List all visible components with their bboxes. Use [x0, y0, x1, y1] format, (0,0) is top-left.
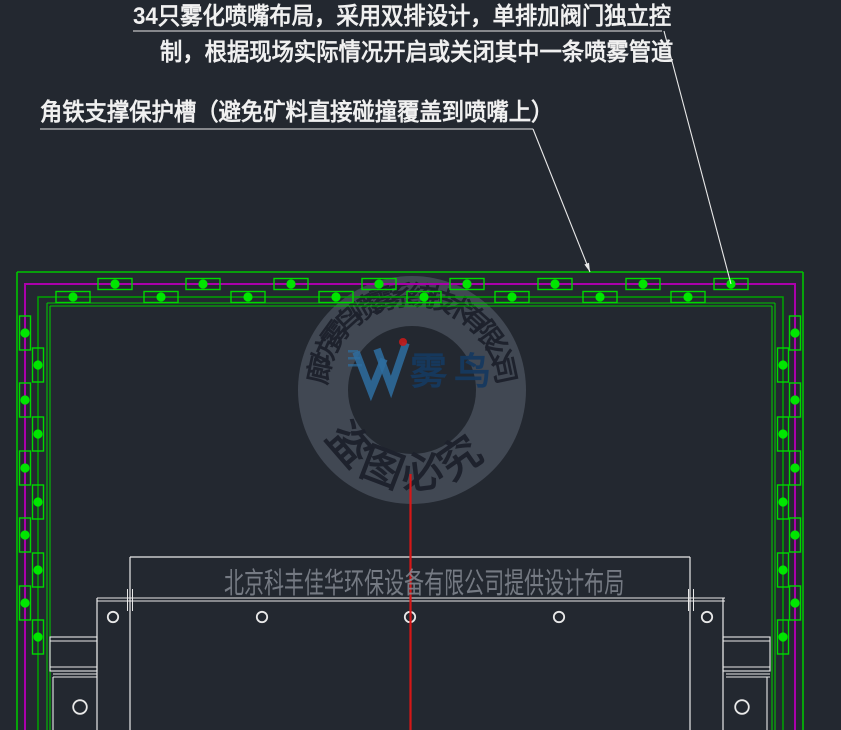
annotation-nozzle-layout-line1: 34只雾化喷嘴布局，采用双排设计，单排加阀门独立控 [133, 4, 671, 30]
bolt-hole [257, 612, 267, 622]
watermark-design-credit: 北京科丰佳华环保设备有限公司提供设计布局 [224, 560, 624, 602]
bolt-hole [554, 612, 564, 622]
logo-wuniao-text: 雾鸟 [410, 351, 498, 392]
bolt-hole [702, 612, 712, 622]
bolt-hole [73, 700, 87, 714]
leader-arrowhead [584, 263, 590, 272]
annotation-nozzle-layout-line2: 制，根据现场实际情况开启或关闭其中一条喷雾管道 [160, 40, 673, 66]
cad-drawing-canvas: 廊坊雾鸟喷雾系统技术有限公司盗图必究雾鸟 34只雾化喷嘴布局，采用双排设计，单排… [0, 0, 841, 730]
leader-lines [40, 31, 731, 284]
annotation-protection-channel: 角铁支撑保护槽（避免矿料直接碰撞覆盖到喷嘴上） [40, 100, 553, 126]
bolt-hole [108, 612, 118, 622]
bolt-hole [735, 700, 749, 714]
